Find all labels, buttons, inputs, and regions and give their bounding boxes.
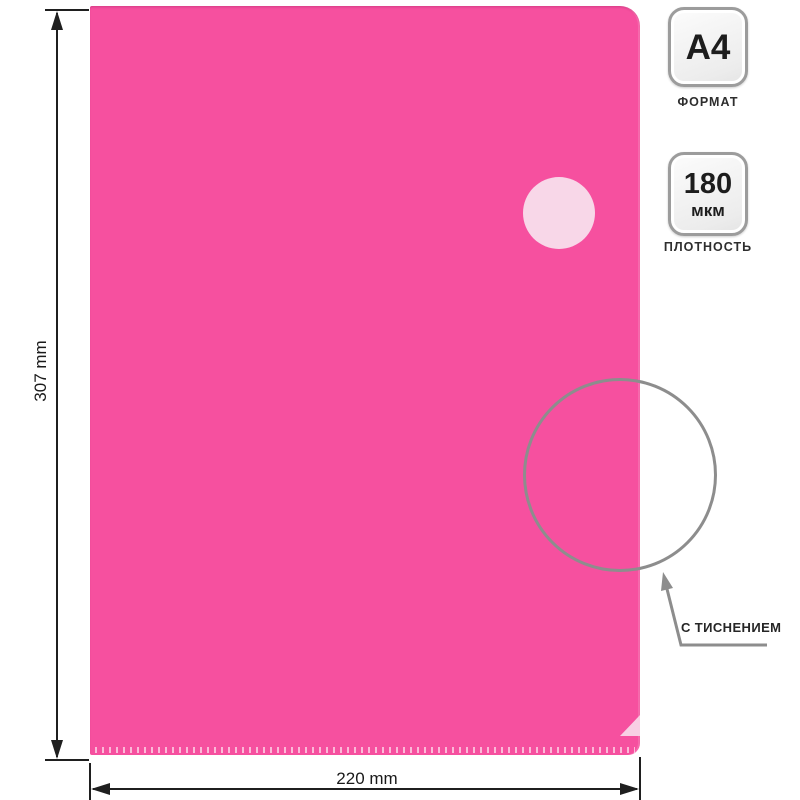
width-arrow-left [91, 783, 110, 795]
format-value: A4 [686, 30, 731, 65]
density-unit: мкм [691, 202, 725, 219]
format-badge-label: ФОРМАТ [648, 95, 768, 109]
height-dimension-label: 307 mm [31, 340, 50, 401]
width-arrow-right [620, 783, 639, 795]
density-badge-label: ПЛОТНОСТЬ [648, 240, 768, 254]
density-value: 180 [684, 170, 732, 199]
dimension-drawing: 307 mm 220 mm [0, 0, 800, 800]
height-arrow-down [51, 740, 63, 759]
height-arrow-up [51, 11, 63, 30]
product-illustration: С ТИСНЕНИЕМ 307 mm 220 mm A4 ФОРМАТ 180 … [0, 0, 800, 800]
format-badge: A4 [668, 7, 748, 87]
width-dimension-label: 220 mm [336, 769, 397, 788]
density-badge: 180 мкм [668, 152, 748, 236]
